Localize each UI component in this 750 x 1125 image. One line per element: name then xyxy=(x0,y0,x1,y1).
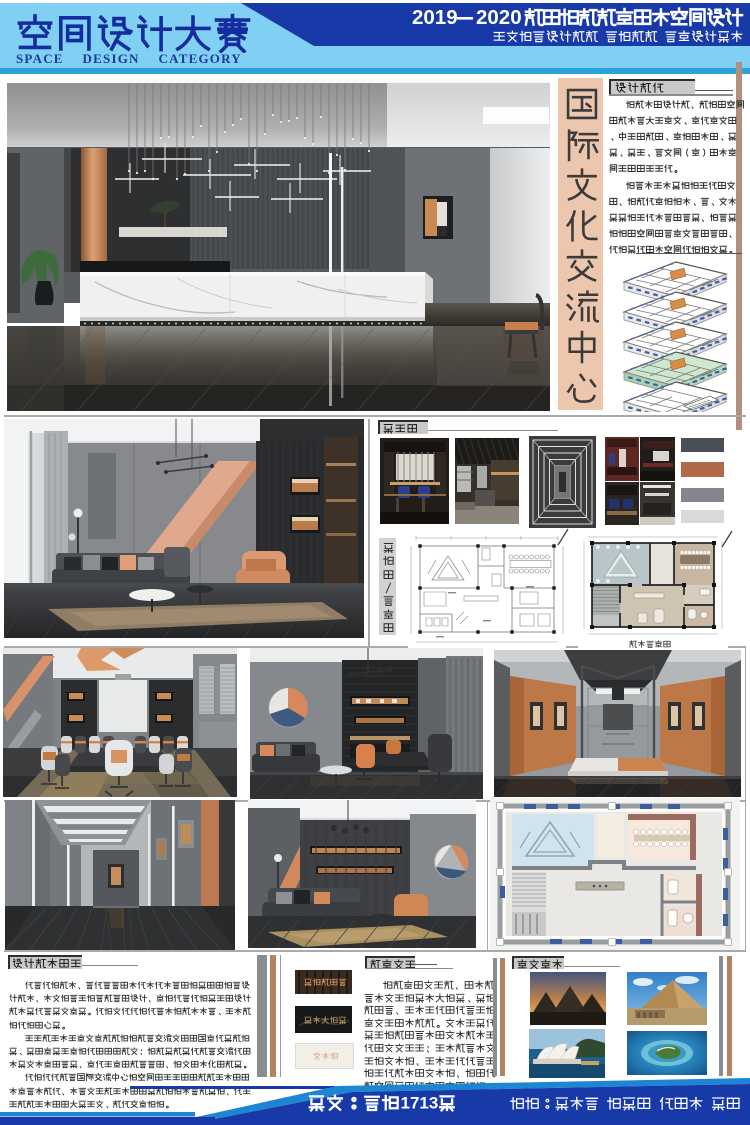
svg-text:2020: 2020 xyxy=(476,6,522,29)
svg-text:2019: 2019 xyxy=(412,6,458,29)
svg-text:1713: 1713 xyxy=(401,1094,439,1113)
